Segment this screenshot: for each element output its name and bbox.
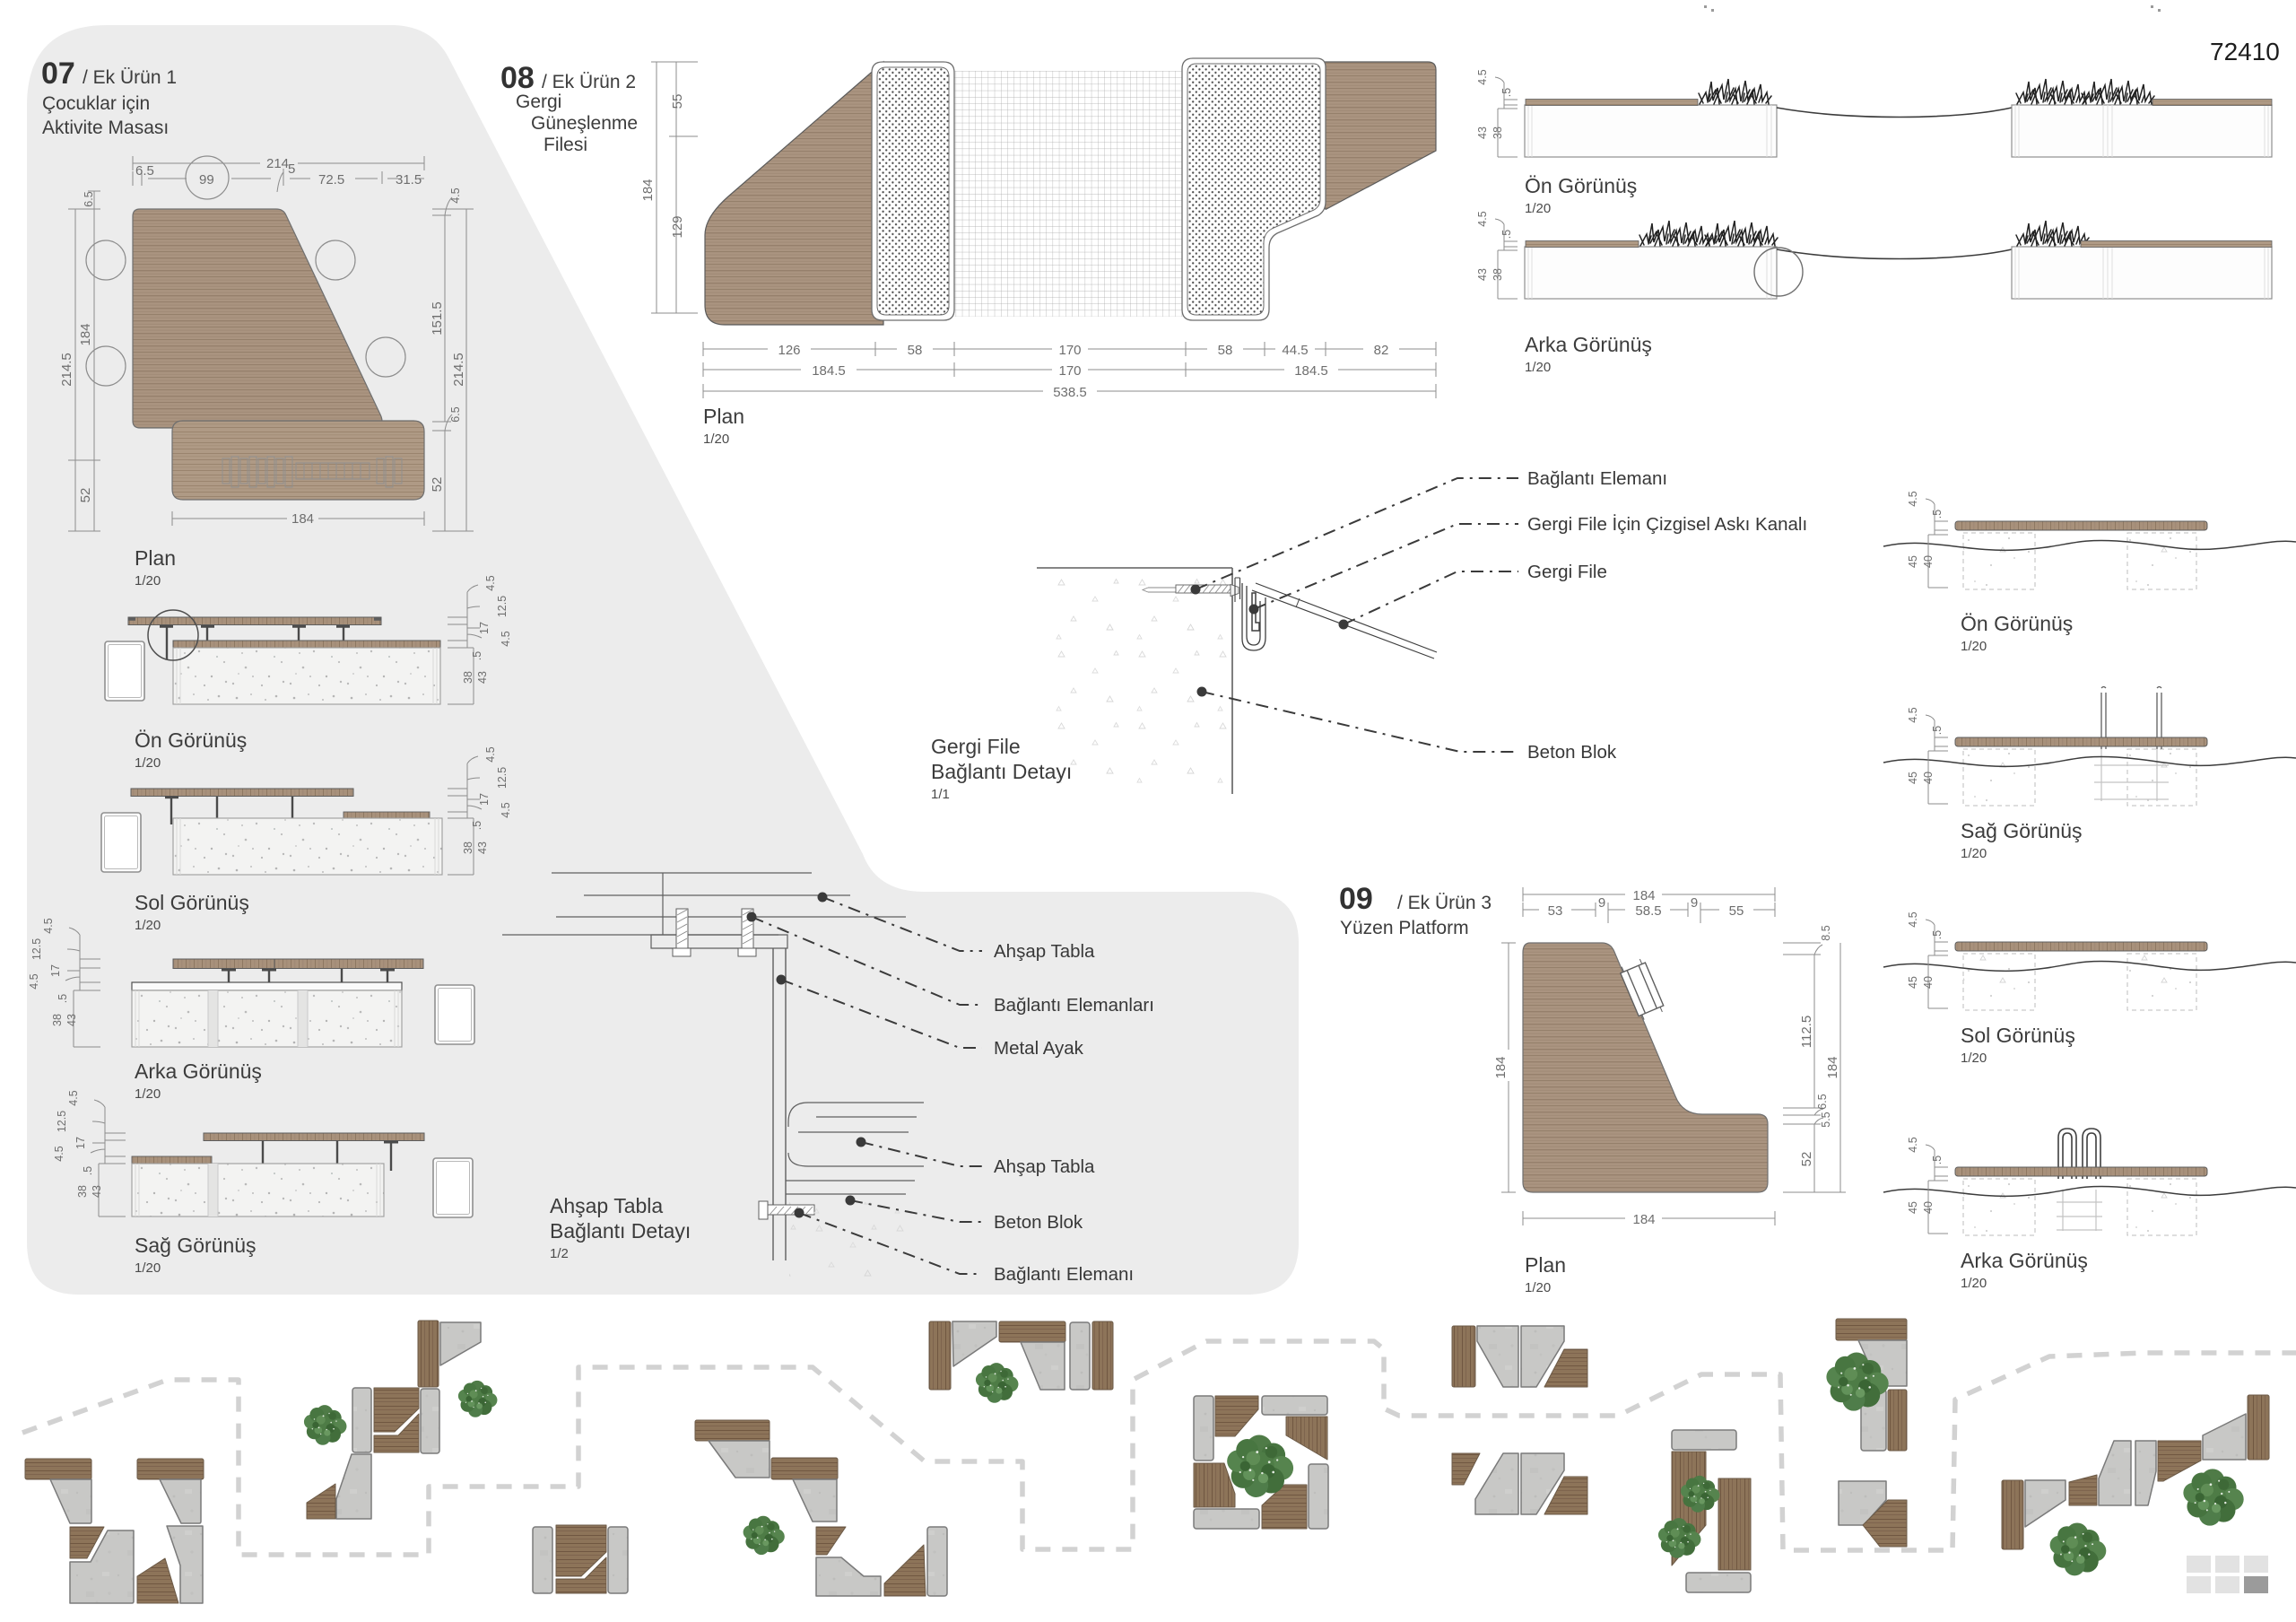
svg-text:38: 38 bbox=[1492, 126, 1504, 139]
svg-text:Beton Blok: Beton Blok bbox=[1527, 742, 1617, 763]
svg-text:Sol Görünüş: Sol Görünüş bbox=[135, 891, 249, 914]
svg-text:31.5: 31.5 bbox=[396, 172, 422, 187]
svg-text:12.5: 12.5 bbox=[496, 767, 509, 789]
svg-text:58: 58 bbox=[1218, 343, 1233, 358]
svg-text:1/20: 1/20 bbox=[135, 755, 161, 771]
svg-text:Gergi File İçin Çizgisel Askı: Gergi File İçin Çizgisel Askı Kanalı bbox=[1527, 514, 1807, 535]
svg-text:Bağlantı Detayı: Bağlantı Detayı bbox=[550, 1219, 691, 1243]
svg-text:6.5: 6.5 bbox=[135, 163, 154, 179]
svg-text:112.5: 112.5 bbox=[1799, 1016, 1814, 1048]
svg-text:43: 43 bbox=[91, 1185, 103, 1198]
svg-text:Plan: Plan bbox=[703, 405, 744, 428]
svg-text:17: 17 bbox=[478, 622, 491, 634]
svg-text:72.5: 72.5 bbox=[318, 172, 344, 187]
svg-text:5.5: 5.5 bbox=[1820, 1112, 1832, 1127]
svg-text:52: 52 bbox=[1799, 1152, 1814, 1167]
svg-text:184.5: 184.5 bbox=[812, 363, 846, 379]
svg-text:.5: .5 bbox=[1931, 726, 1944, 735]
svg-text:Ön Görünüş: Ön Görünüş bbox=[1961, 612, 2073, 635]
svg-text:Bağlantı Elemanları: Bağlantı Elemanları bbox=[994, 995, 1154, 1016]
svg-text:Gergi File: Gergi File bbox=[1527, 562, 1607, 582]
svg-text:184: 184 bbox=[1493, 1056, 1509, 1078]
svg-text:58: 58 bbox=[908, 343, 923, 358]
svg-text:6.5: 6.5 bbox=[83, 191, 95, 206]
svg-text:09: 09 bbox=[1339, 882, 1373, 916]
svg-text:184: 184 bbox=[1632, 888, 1655, 903]
svg-text:9: 9 bbox=[1598, 895, 1605, 911]
svg-text:/ Ek Ürün 2: / Ek Ürün 2 bbox=[542, 72, 636, 92]
svg-text:43: 43 bbox=[476, 671, 489, 684]
svg-text:38: 38 bbox=[462, 842, 474, 854]
svg-text:38: 38 bbox=[51, 1014, 64, 1026]
svg-text:99: 99 bbox=[199, 172, 214, 187]
svg-text:Aktivite Masası: Aktivite Masası bbox=[42, 118, 169, 138]
svg-text:Gergi: Gergi bbox=[516, 92, 561, 112]
svg-text:Bağlantı Detayı: Bağlantı Detayı bbox=[931, 760, 1072, 783]
svg-text:17: 17 bbox=[74, 1137, 87, 1149]
svg-text:4.5: 4.5 bbox=[1476, 69, 1489, 84]
svg-text:Ahşap Tabla: Ahşap Tabla bbox=[550, 1194, 663, 1217]
svg-text:82: 82 bbox=[1374, 343, 1389, 358]
svg-text:214.5: 214.5 bbox=[59, 353, 74, 387]
svg-text:12.5: 12.5 bbox=[56, 1111, 68, 1132]
svg-text:184: 184 bbox=[1825, 1056, 1840, 1078]
svg-text:Ahşap Tabla: Ahşap Tabla bbox=[994, 941, 1095, 962]
svg-text:1/20: 1/20 bbox=[135, 918, 161, 933]
svg-text:184: 184 bbox=[1632, 1212, 1655, 1227]
svg-text:4.5: 4.5 bbox=[1907, 491, 1919, 506]
svg-text:4.5: 4.5 bbox=[42, 918, 55, 933]
svg-text:.5: .5 bbox=[1931, 1155, 1944, 1164]
svg-text:Çocuklar için: Çocuklar için bbox=[42, 93, 150, 114]
svg-text:.5: .5 bbox=[1500, 230, 1513, 239]
svg-text:Plan: Plan bbox=[135, 546, 176, 570]
svg-text:38: 38 bbox=[76, 1185, 89, 1198]
svg-text:.5: .5 bbox=[82, 1166, 94, 1175]
svg-text:170: 170 bbox=[1058, 363, 1081, 379]
svg-text:1/20: 1/20 bbox=[1961, 846, 1987, 861]
svg-text:129: 129 bbox=[670, 215, 685, 238]
svg-text:Arka Görünüş: Arka Görünüş bbox=[135, 1060, 262, 1083]
svg-text:6.5: 6.5 bbox=[1816, 1094, 1829, 1109]
svg-text:45: 45 bbox=[1907, 555, 1919, 568]
svg-text:52: 52 bbox=[430, 477, 445, 493]
svg-text:43: 43 bbox=[1476, 268, 1489, 281]
svg-text:1/1: 1/1 bbox=[931, 787, 950, 802]
svg-text:40: 40 bbox=[1922, 976, 1935, 989]
svg-text:538.5: 538.5 bbox=[1053, 385, 1087, 400]
svg-text:Ön Görünüş: Ön Görünüş bbox=[1525, 174, 1637, 197]
svg-text:6.5: 6.5 bbox=[449, 406, 462, 422]
svg-text:1/20: 1/20 bbox=[1525, 360, 1551, 375]
svg-text:58.5: 58.5 bbox=[1635, 903, 1661, 919]
svg-text:Plan: Plan bbox=[1525, 1253, 1566, 1277]
svg-text:45: 45 bbox=[1907, 976, 1919, 989]
svg-text:43: 43 bbox=[476, 842, 489, 854]
svg-text:.5: .5 bbox=[471, 821, 483, 830]
svg-text:Ön Görünüş: Ön Görünüş bbox=[135, 728, 247, 752]
svg-text:Sağ Görünüş: Sağ Görünüş bbox=[1961, 819, 2083, 842]
svg-text:184.5: 184.5 bbox=[1294, 363, 1328, 379]
svg-text:4.5: 4.5 bbox=[449, 187, 462, 203]
svg-text:45: 45 bbox=[1907, 772, 1919, 784]
svg-text:Arka Görünüş: Arka Görünüş bbox=[1525, 333, 1652, 356]
svg-text:40: 40 bbox=[1922, 772, 1935, 784]
svg-text:12.5: 12.5 bbox=[30, 938, 43, 960]
svg-text:08: 08 bbox=[500, 61, 535, 95]
svg-text:1/2: 1/2 bbox=[550, 1246, 569, 1261]
svg-text:4.5: 4.5 bbox=[1907, 911, 1919, 927]
svg-text:Filesi: Filesi bbox=[544, 135, 587, 155]
svg-text:Metal Ayak: Metal Ayak bbox=[994, 1038, 1084, 1059]
svg-text:8.5: 8.5 bbox=[1820, 925, 1832, 940]
svg-text:4.5: 4.5 bbox=[484, 746, 497, 762]
svg-text:/ Ek Ürün 1: / Ek Ürün 1 bbox=[83, 67, 177, 88]
svg-text:Bağlantı Elemanı: Bağlantı Elemanı bbox=[1527, 468, 1667, 489]
svg-text:4.5: 4.5 bbox=[28, 973, 40, 989]
svg-text:5: 5 bbox=[288, 161, 295, 177]
svg-text:38: 38 bbox=[462, 671, 474, 684]
svg-text:184: 184 bbox=[291, 511, 314, 527]
svg-text:1/20: 1/20 bbox=[703, 432, 729, 447]
svg-text:38: 38 bbox=[1492, 268, 1504, 281]
svg-text:1/20: 1/20 bbox=[1961, 1276, 1987, 1291]
svg-text:45: 45 bbox=[1907, 1201, 1919, 1214]
svg-text:4.5: 4.5 bbox=[1907, 707, 1919, 722]
svg-text:1/20: 1/20 bbox=[1525, 1280, 1551, 1295]
svg-text:4.5: 4.5 bbox=[53, 1146, 65, 1161]
svg-text:Bağlantı Elemanı: Bağlantı Elemanı bbox=[994, 1264, 1134, 1285]
svg-text:1/20: 1/20 bbox=[1961, 639, 1987, 654]
svg-text:4.5: 4.5 bbox=[1907, 1137, 1919, 1152]
svg-text:43: 43 bbox=[65, 1014, 78, 1026]
svg-text:9: 9 bbox=[1691, 895, 1698, 911]
svg-text:1/20: 1/20 bbox=[135, 1260, 161, 1276]
svg-text:4.5: 4.5 bbox=[500, 631, 512, 646]
svg-text:4.5: 4.5 bbox=[500, 802, 512, 817]
svg-text:/ Ek Ürün 3: / Ek Ürün 3 bbox=[1397, 893, 1492, 913]
svg-text:40: 40 bbox=[1922, 1201, 1935, 1214]
svg-text:44.5: 44.5 bbox=[1282, 343, 1308, 358]
svg-text:17: 17 bbox=[478, 793, 491, 806]
svg-text:4.5: 4.5 bbox=[67, 1090, 80, 1105]
svg-text:4.5: 4.5 bbox=[484, 575, 497, 590]
svg-text:Arka Görünüş: Arka Görünüş bbox=[1961, 1249, 2088, 1272]
svg-text:07: 07 bbox=[41, 57, 75, 91]
svg-text:40: 40 bbox=[1922, 555, 1935, 568]
svg-text:Güneşlenme: Güneşlenme bbox=[531, 113, 638, 134]
svg-text:Gergi File: Gergi File bbox=[931, 735, 1021, 758]
svg-text:Sağ Görünüş: Sağ Görünüş bbox=[135, 1234, 257, 1257]
svg-text:184: 184 bbox=[78, 323, 93, 345]
svg-text:55: 55 bbox=[670, 94, 685, 109]
svg-text:126: 126 bbox=[778, 343, 800, 358]
svg-text:17: 17 bbox=[49, 964, 62, 977]
svg-text:151.5: 151.5 bbox=[430, 301, 445, 336]
svg-text:55: 55 bbox=[1729, 903, 1744, 919]
svg-text:52: 52 bbox=[78, 488, 93, 503]
svg-text:53: 53 bbox=[1548, 903, 1563, 919]
svg-text:1/20: 1/20 bbox=[1525, 201, 1551, 216]
svg-text:72410: 72410 bbox=[2210, 38, 2280, 65]
svg-text:Yüzen Platform: Yüzen Platform bbox=[1340, 918, 1469, 938]
svg-text:.5: .5 bbox=[57, 994, 69, 1003]
svg-text:Sol Görünüş: Sol Görünüş bbox=[1961, 1024, 2075, 1047]
svg-text:1/20: 1/20 bbox=[135, 573, 161, 589]
svg-text:1/20: 1/20 bbox=[1961, 1051, 1987, 1066]
svg-text:4.5: 4.5 bbox=[1476, 211, 1489, 226]
svg-text:184: 184 bbox=[640, 179, 656, 201]
svg-text:.5: .5 bbox=[1931, 930, 1944, 939]
svg-text:214.5: 214.5 bbox=[451, 353, 466, 387]
svg-text:214: 214 bbox=[266, 156, 289, 171]
svg-text:12.5: 12.5 bbox=[496, 596, 509, 617]
svg-text:.5: .5 bbox=[1931, 510, 1944, 519]
svg-text:.5: .5 bbox=[1500, 88, 1513, 97]
svg-text:1/20: 1/20 bbox=[135, 1086, 161, 1102]
svg-text:Ahşap Tabla: Ahşap Tabla bbox=[994, 1156, 1095, 1177]
svg-text:170: 170 bbox=[1058, 343, 1081, 358]
svg-text:Beton Blok: Beton Blok bbox=[994, 1212, 1083, 1233]
svg-text:43: 43 bbox=[1476, 126, 1489, 139]
svg-text:.5: .5 bbox=[471, 651, 483, 660]
